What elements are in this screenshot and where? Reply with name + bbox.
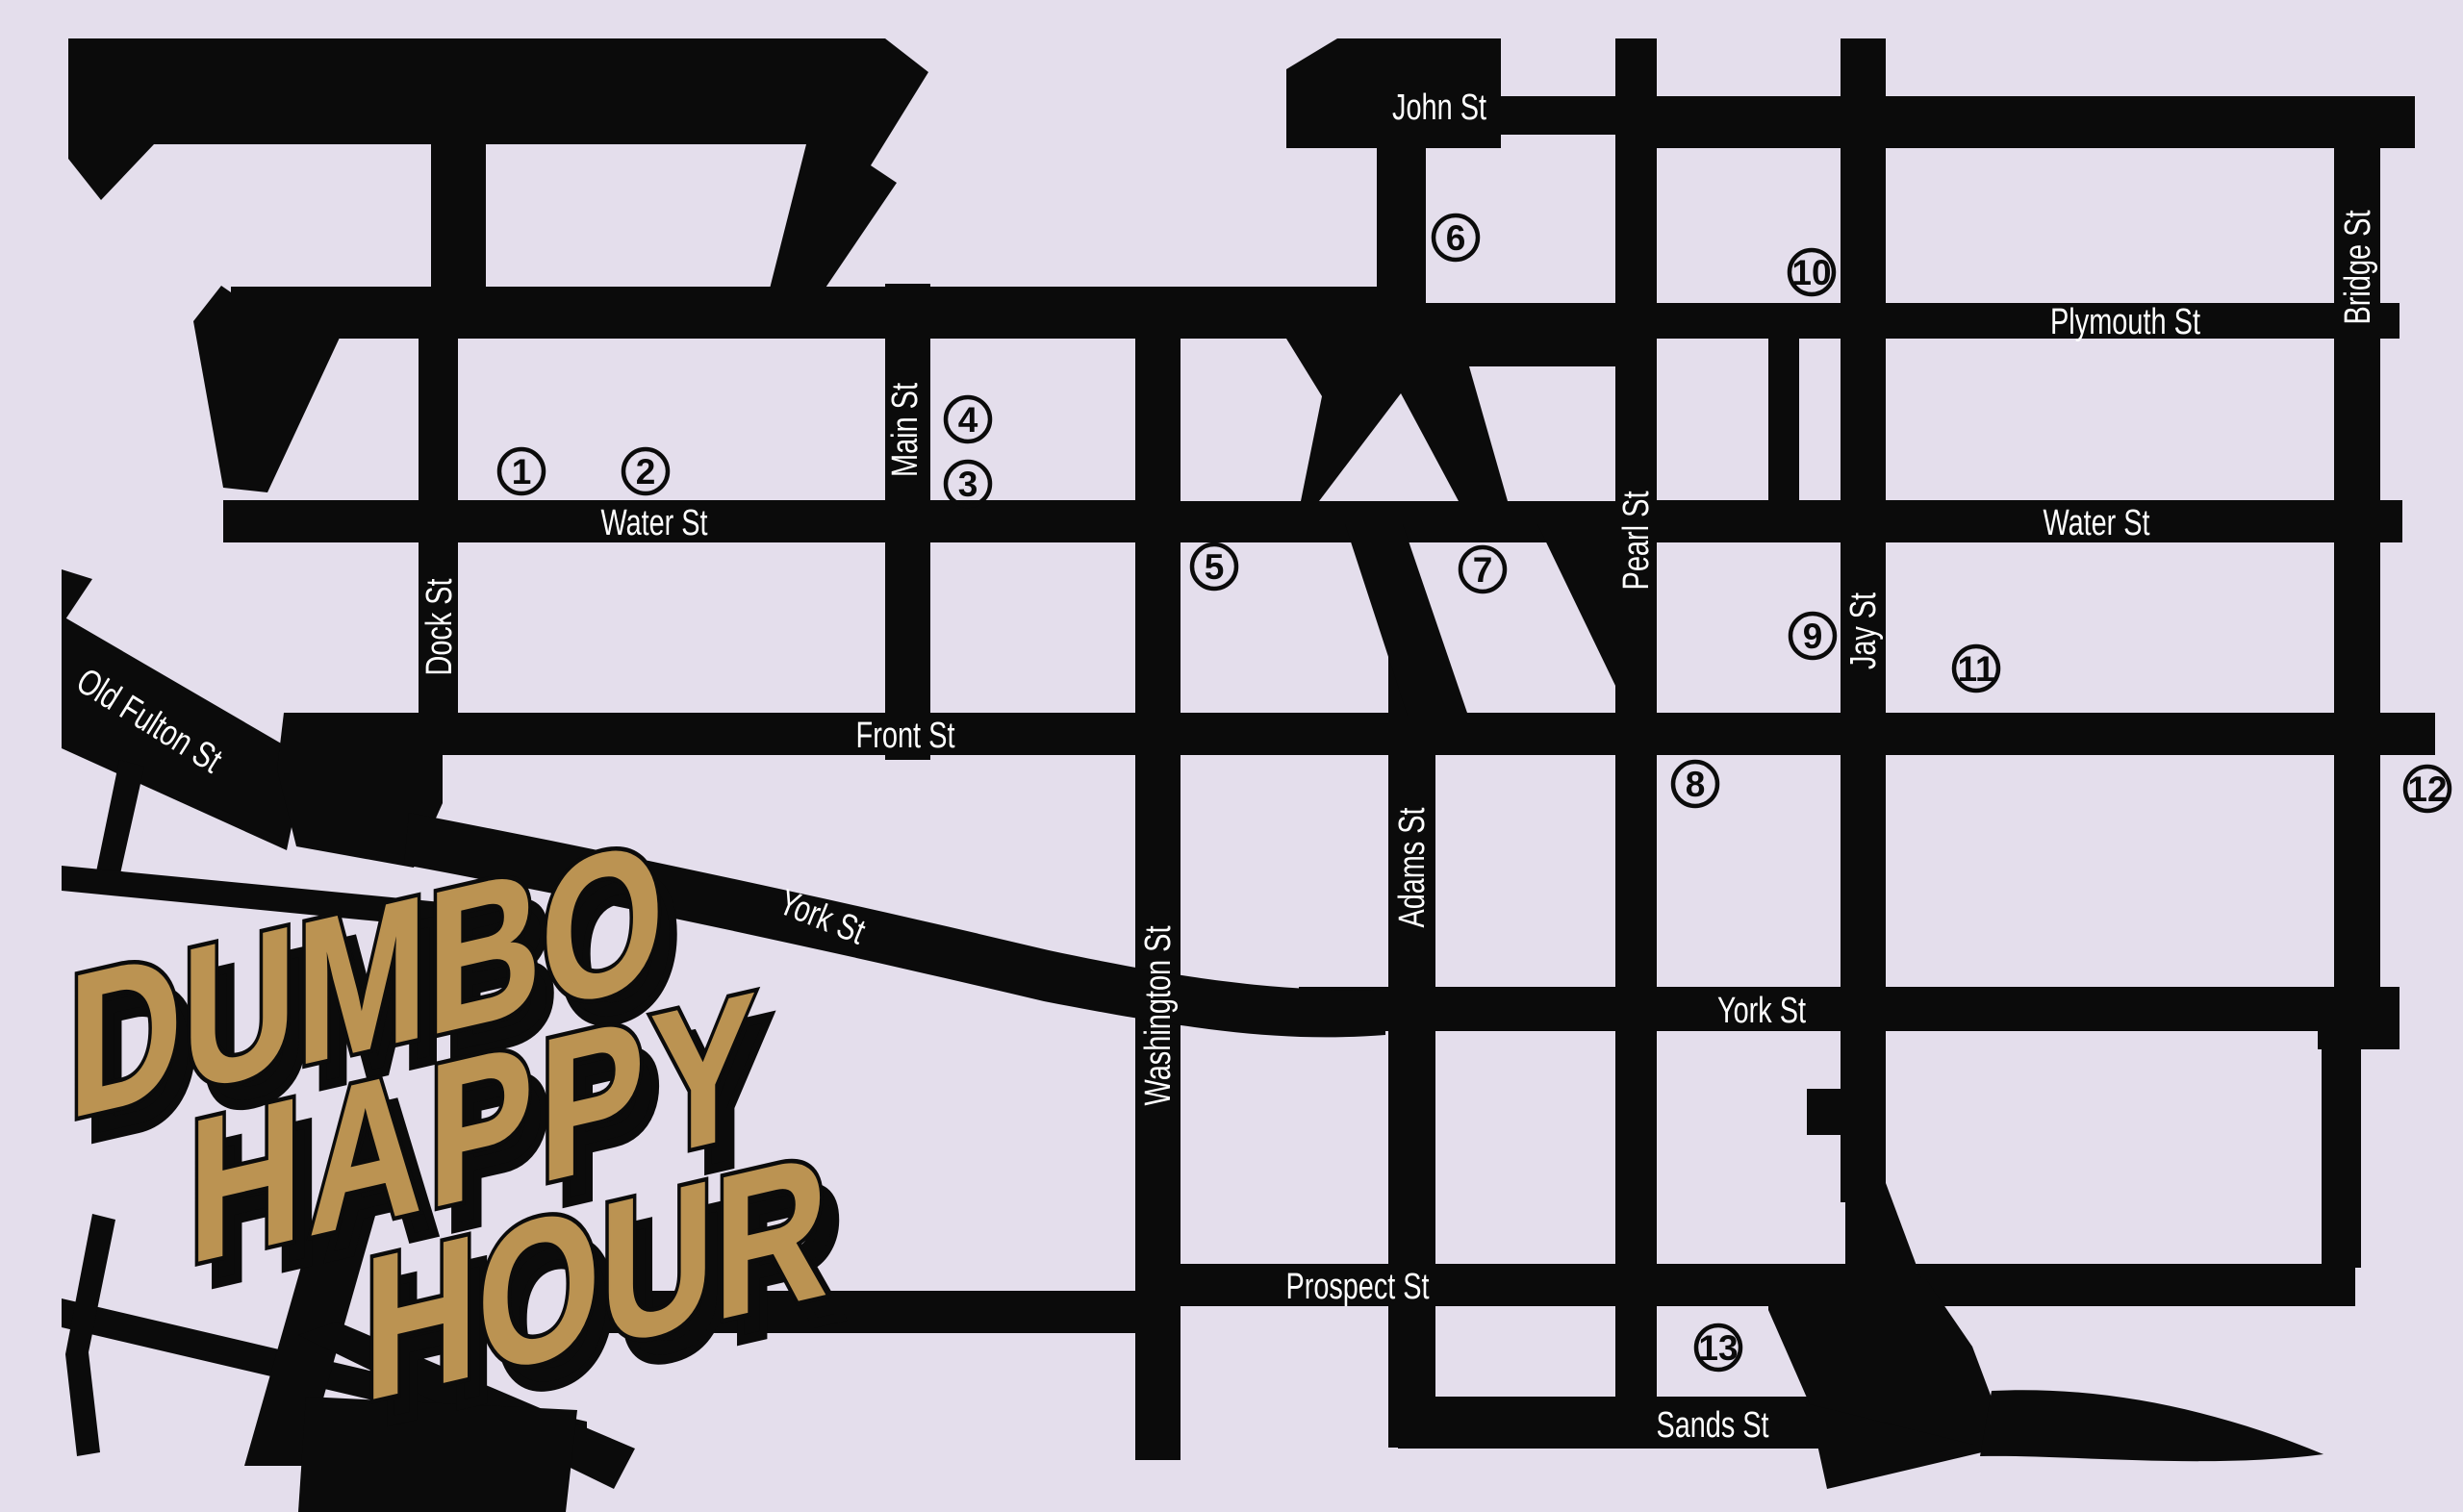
svg-text:1: 1 [512, 452, 532, 491]
svg-text:Sands St: Sands St [1657, 1405, 1769, 1446]
svg-text:Water St: Water St [2044, 503, 2150, 543]
svg-text:6: 6 [1446, 218, 1466, 258]
svg-text:Plymouth St: Plymouth St [2050, 302, 2200, 342]
svg-text:Prospect St: Prospect St [1286, 1267, 1430, 1307]
svg-text:Washington St: Washington St [1138, 925, 1179, 1105]
svg-text:2: 2 [636, 452, 656, 491]
svg-text:3: 3 [958, 465, 978, 504]
svg-text:5: 5 [1205, 547, 1225, 587]
svg-text:Pearl St: Pearl St [1616, 491, 1657, 590]
svg-text:8: 8 [1686, 765, 1706, 804]
svg-text:7: 7 [1473, 550, 1493, 590]
svg-text:Front St: Front St [856, 716, 955, 756]
svg-text:Jay St: Jay St [1843, 592, 1884, 669]
svg-text:11: 11 [1957, 649, 1994, 689]
svg-text:York St: York St [1717, 991, 1806, 1031]
svg-text:10: 10 [1791, 253, 1831, 292]
svg-text:Bridge St: Bridge St [2338, 210, 2378, 324]
svg-text:4: 4 [958, 400, 978, 440]
svg-text:Main St: Main St [885, 383, 926, 477]
svg-text:Adams St: Adams St [1392, 807, 1433, 927]
svg-text:John St: John St [1392, 88, 1486, 128]
svg-text:12: 12 [2407, 769, 2447, 809]
svg-text:9: 9 [1803, 617, 1823, 656]
svg-text:Water St: Water St [601, 503, 708, 543]
svg-text:13: 13 [1698, 1328, 1738, 1368]
svg-text:Dock St: Dock St [419, 578, 460, 675]
